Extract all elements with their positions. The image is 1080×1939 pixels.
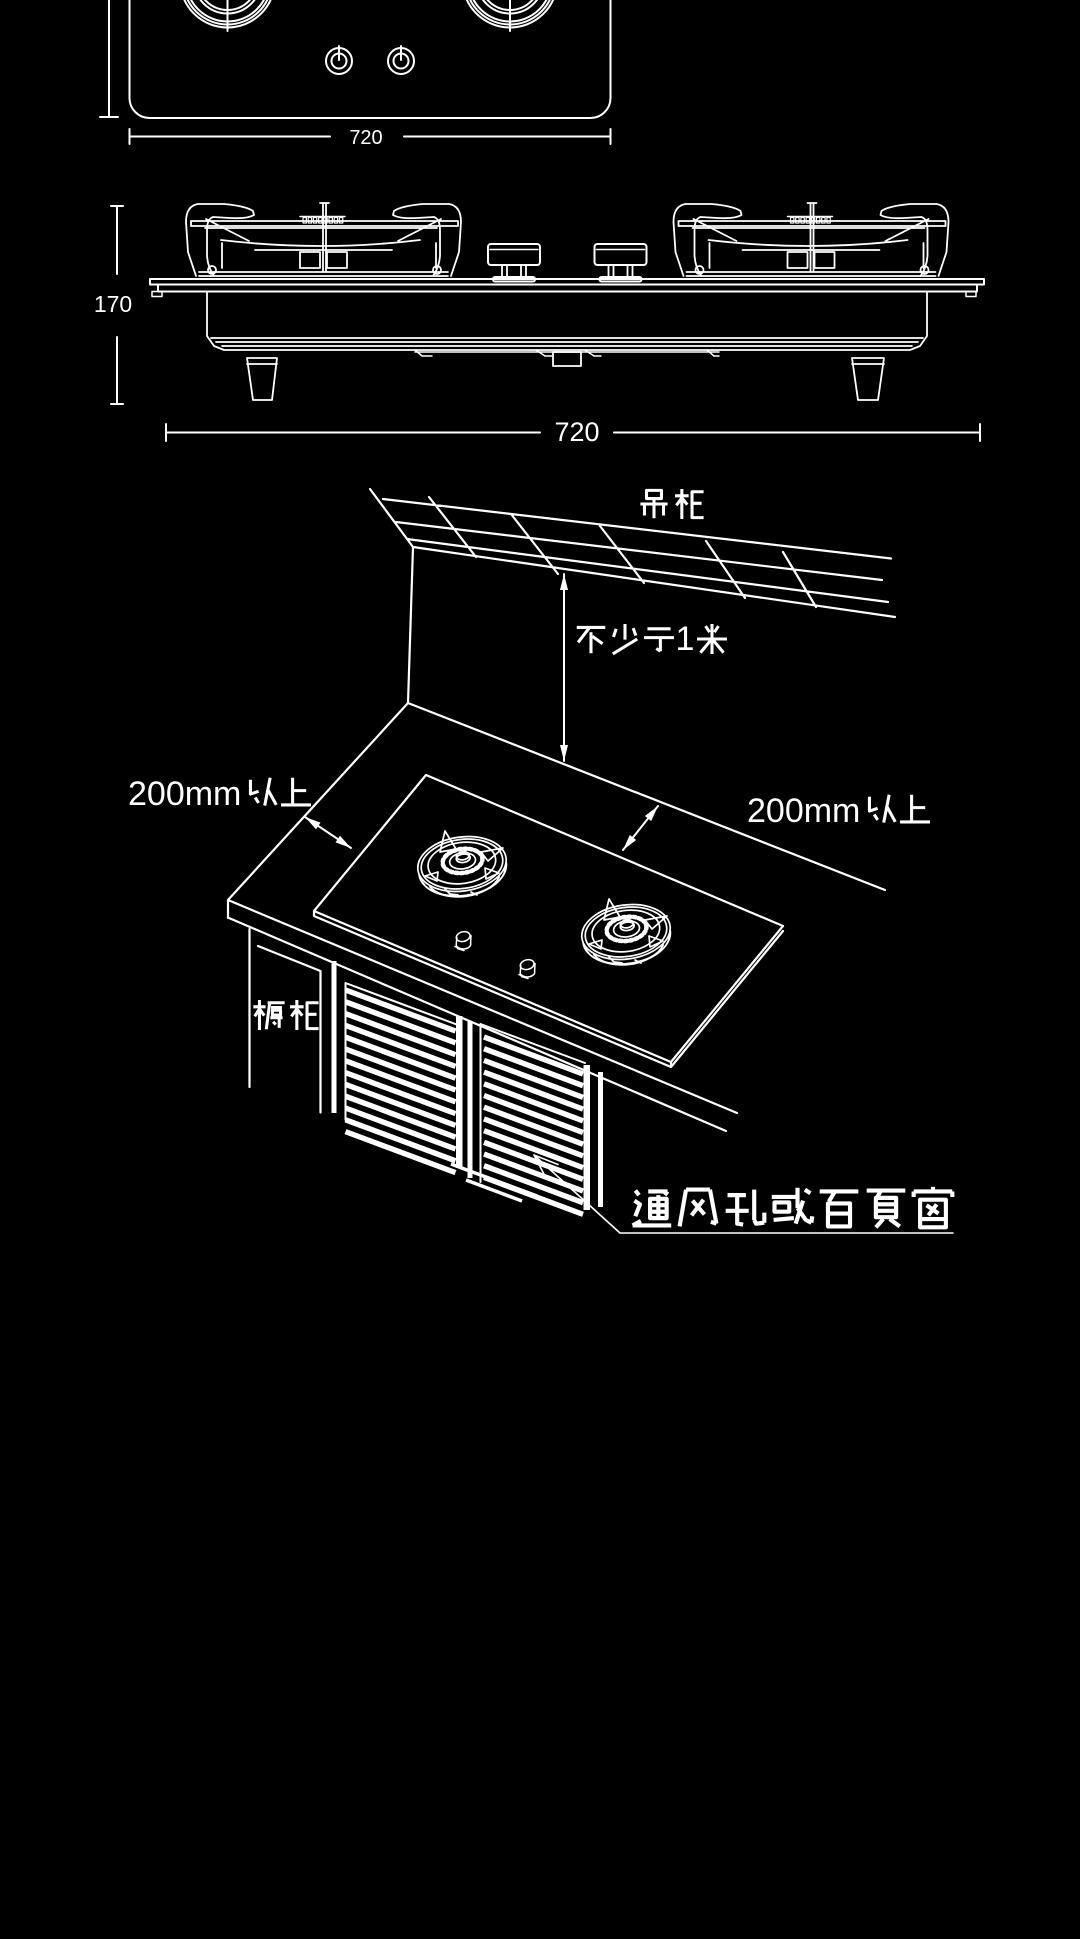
svg-text:1: 1	[676, 620, 695, 658]
svg-text:720: 720	[554, 417, 599, 447]
svg-text:720: 720	[349, 127, 382, 149]
svg-text:200mm: 200mm	[747, 792, 860, 830]
svg-text:200mm: 200mm	[128, 775, 241, 813]
svg-text:170: 170	[94, 291, 132, 317]
